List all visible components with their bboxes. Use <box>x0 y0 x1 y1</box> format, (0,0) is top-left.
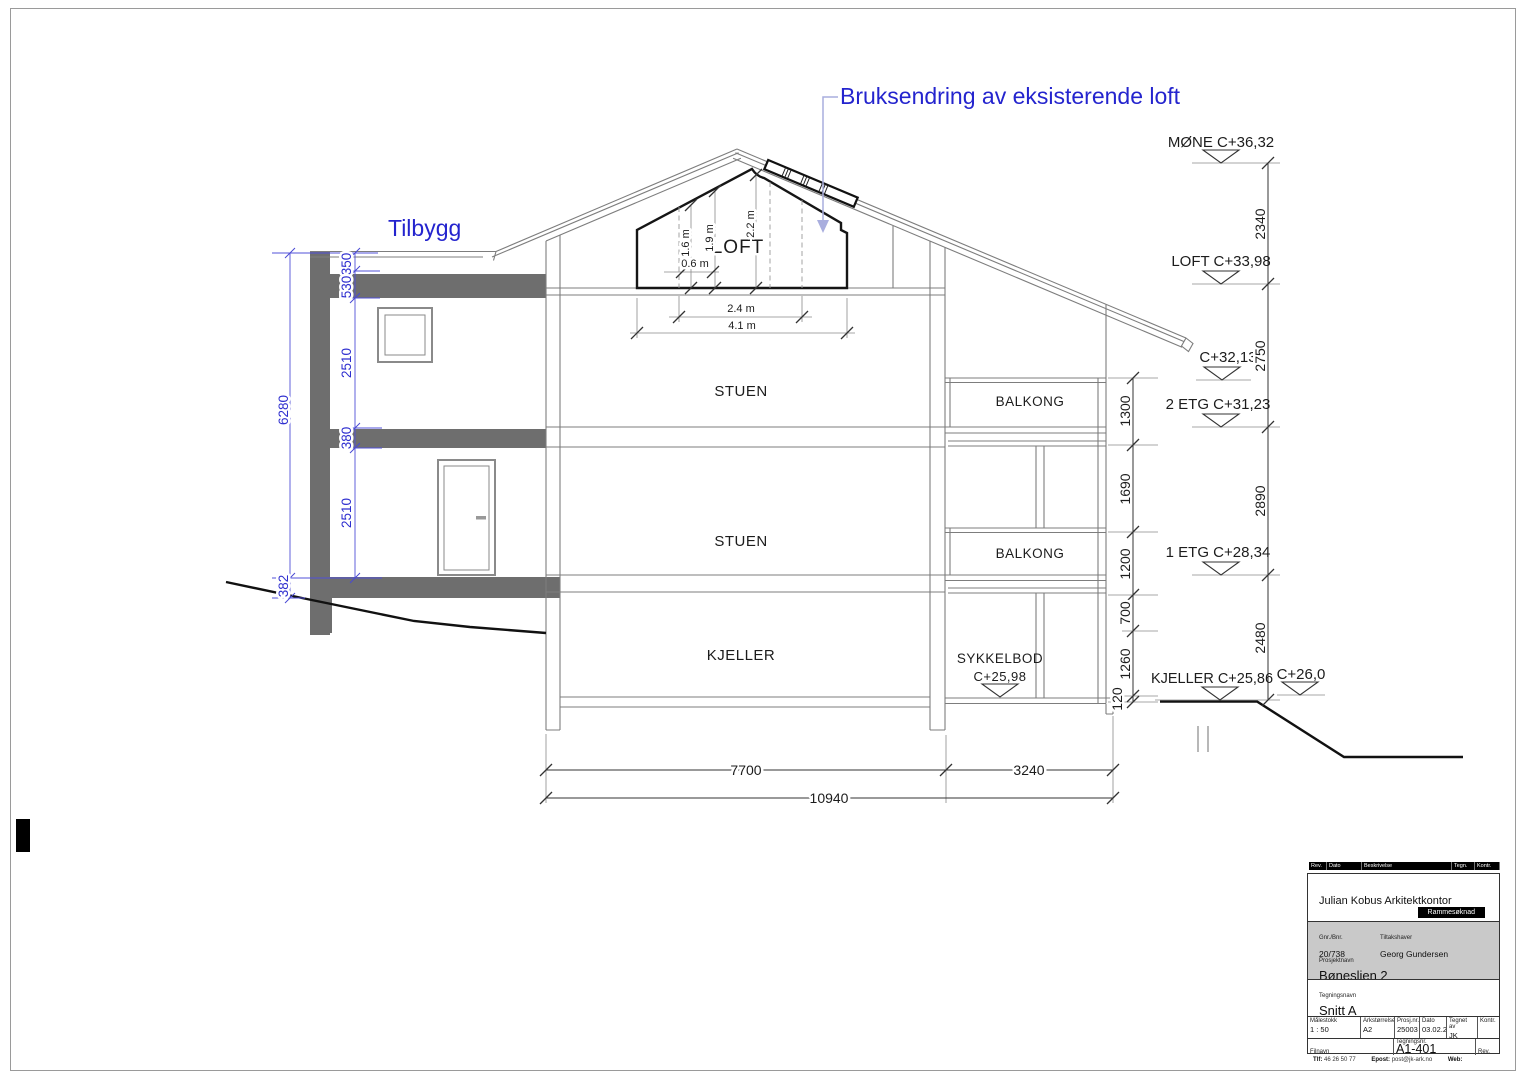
level-triangle-loft <box>1203 271 1239 284</box>
tegningsnr-label: Tegningsnr. <box>1396 1039 1427 1045</box>
tegnetav-value: JK <box>1449 1031 1475 1038</box>
dim-loft-06m: 0.6 m <box>681 258 709 270</box>
dim-loft-24m: 2.4 m <box>727 303 755 315</box>
rev-col-header: Rev. <box>1309 862 1327 870</box>
kontr-label: Kontr. <box>1480 1018 1497 1024</box>
leader-line <box>823 97 838 222</box>
level-label-etg1: 1 ETG C+28,34 <box>1166 544 1271 561</box>
tegnetav-label: Tegnet av <box>1449 1018 1475 1030</box>
dim-right-2890: 2890 <box>1252 485 1268 516</box>
contact-footer: Tlf: 46 26 50 77 Epost: post@jk-ark.no W… <box>1313 1057 1513 1063</box>
dim-inner-120: 120 <box>1109 687 1125 711</box>
arkstorrelse-cell: Arkstørrelse A2 <box>1361 1017 1395 1038</box>
kontr-cell: Kontr. <box>1478 1017 1499 1038</box>
tegningsnavn-value: Snitt A <box>1319 1003 1357 1018</box>
rev-cell: Rev. <box>1476 1039 1499 1055</box>
addition-floor-slab <box>310 577 560 598</box>
tegn-col-header: Tegn. <box>1452 862 1475 870</box>
level-triangle-kjeller <box>1202 687 1238 700</box>
web-label: Web: <box>1448 1057 1463 1063</box>
window <box>378 308 432 362</box>
room-label-stuen-lower: STUEN <box>714 533 767 550</box>
level-triangle-etg1 <box>1203 562 1239 575</box>
rev-label: Rev. <box>1478 1049 1490 1055</box>
arkstorrelse-value: A2 <box>1363 1025 1392 1034</box>
level-label-mone: MØNE C+36,32 <box>1168 134 1274 151</box>
level-label-c26: C+26,0 <box>1277 666 1326 683</box>
company-name: Julian Kobus Arkitektkontor <box>1319 895 1452 907</box>
dim-left-382: 382 <box>276 575 291 598</box>
annotation-tilbygg: Tilbygg <box>388 215 461 241</box>
dato-value: 03.02.26 <box>1422 1025 1444 1034</box>
door <box>438 460 495 575</box>
dato-col-header: Dato <box>1327 862 1362 870</box>
beskrivelse-col-header: Beskrivelse <box>1362 862 1452 870</box>
dim-left-6280: 6280 <box>276 395 291 425</box>
prosjektnavn-label: Prosjektnavn <box>1319 958 1354 964</box>
level-triangle-sykkelbod <box>982 684 1018 697</box>
malestokk-value: 1 : 50 <box>1310 1025 1358 1034</box>
filnavn-label: Filnavn <box>1310 1049 1329 1055</box>
dim-bottom-3240: 3240 <box>1013 762 1044 778</box>
tiltakshaver-value: Georg Gundersen <box>1380 949 1448 959</box>
level-triangle-c32 <box>1204 367 1240 380</box>
dim-loft-19m: 1.9 m <box>704 224 716 252</box>
dim-right-2340: 2340 <box>1252 208 1268 239</box>
level-triangle-etg2 <box>1203 414 1239 427</box>
tlf-label: Tlf: <box>1313 1057 1322 1063</box>
fold-mark <box>16 819 30 852</box>
title-block-project-section: Gnr./Bnr. 20/738 Tiltakshaver Georg Gund… <box>1308 921 1499 979</box>
dim-loft-22m: 2.2 m <box>745 210 757 238</box>
dim-inner-1690: 1690 <box>1117 473 1133 504</box>
room-label-stuen-upper: STUEN <box>714 383 767 400</box>
dim-loft-16m: 1.6 m <box>680 229 692 257</box>
section-drawing: Bruksendring av eksisterende loft Tilbyg… <box>0 0 1527 1080</box>
dim-left-350: 350 <box>339 253 354 276</box>
dim-inner-700: 700 <box>1117 601 1133 625</box>
malestokk-cell: Målestokk 1 : 50 <box>1308 1017 1361 1038</box>
dato-label: Dato <box>1422 1018 1444 1024</box>
addition-mid-slab <box>330 429 546 448</box>
dim-bottom-7700: 7700 <box>730 762 761 778</box>
level-triangle-mone <box>1203 150 1239 163</box>
dim-inner-1260: 1260 <box>1117 648 1133 679</box>
epost-value: post@jk-ark.no <box>1392 1057 1432 1063</box>
dim-right-2480: 2480 <box>1252 622 1268 653</box>
revision-header-bar: Rev. Dato Beskrivelse Tegn. Kontr. <box>1309 862 1500 870</box>
roof-window-strip <box>764 160 857 207</box>
tlf-value: 46 26 50 77 <box>1324 1057 1356 1063</box>
dato-cell: Dato 03.02.26 <box>1420 1017 1447 1038</box>
tegningsnavn-label: Tegningsnavn <box>1319 993 1356 999</box>
dim-left-2510-lower: 2510 <box>339 498 354 528</box>
gnr-label: Gnr./Bnr. <box>1319 935 1343 941</box>
level-label-c32: C+32,13 <box>1199 349 1256 366</box>
level-label-kjeller: KJELLER C+25,86 <box>1151 671 1273 687</box>
dimension-lines <box>546 163 1268 798</box>
dim-inner-1200: 1200 <box>1117 548 1133 579</box>
filnavn-cell: Filnavn <box>1308 1039 1394 1055</box>
tegningsnr-cell: Tegningsnr. A1-401 <box>1394 1039 1476 1055</box>
room-label-loft: LOFT <box>712 237 765 258</box>
title-block-file-row: Filnavn Tegningsnr. A1-401 Rev. <box>1308 1038 1499 1055</box>
dim-bottom-10940: 10940 <box>810 790 849 806</box>
level-label-etg2: 2 ETG C+31,23 <box>1166 396 1271 413</box>
arkstorrelse-label: Arkstørrelse <box>1363 1018 1392 1024</box>
prosjnr-cell: Prosj.nr. 25003 <box>1395 1017 1420 1038</box>
room-label-kjeller: KJELLER <box>707 647 776 664</box>
arrow-head-icon <box>817 220 829 233</box>
level-label-loft: LOFT C+33,98 <box>1171 253 1270 270</box>
application-type-badge: Rammesøknad <box>1418 907 1485 918</box>
sykkelbod-level-label: C+25,98 <box>973 669 1026 684</box>
door-handle <box>476 516 486 520</box>
dim-left-2510-upper: 2510 <box>339 348 354 378</box>
drawing-sheet: Bruksendring av eksisterende loft Tilbyg… <box>0 0 1527 1080</box>
prosjnr-label: Prosj.nr. <box>1397 1018 1417 1024</box>
tiltakshaver-label: Tiltakshaver <box>1380 935 1412 941</box>
prosjnr-value: 25003 <box>1397 1025 1417 1034</box>
annotation-loft-change: Bruksendring av eksisterende loft <box>840 83 1181 109</box>
dim-right-2750: 2750 <box>1252 340 1268 371</box>
epost-label: Epost: <box>1371 1057 1390 1063</box>
title-block-company-section: Julian Kobus Arkitektkontor Rammesøknad <box>1308 874 1499 921</box>
terrain-line-right <box>1160 702 1463 758</box>
room-label-balkong-upper: BALKONG <box>996 394 1065 409</box>
dim-left-380: 380 <box>339 427 354 450</box>
tegnetav-cell: Tegnet av JK <box>1447 1017 1478 1038</box>
addition-roof-slab <box>330 274 546 298</box>
dim-loft-41m: 4.1 m <box>728 320 756 332</box>
dim-inner-1300: 1300 <box>1117 395 1133 426</box>
loft-change-leader <box>817 97 838 233</box>
level-triangle-c26 <box>1282 682 1318 695</box>
kontr-col-header: Kontr. <box>1475 862 1500 870</box>
title-block-drawing-name-section: Tegningsnavn Snitt A <box>1308 979 1499 1016</box>
room-label-balkong-lower: BALKONG <box>996 546 1065 561</box>
level-lines <box>1155 163 1325 700</box>
dim-left-530: 530 <box>339 276 354 299</box>
title-block: Julian Kobus Arkitektkontor Rammesøknad … <box>1307 873 1500 1054</box>
room-label-sykkelbod: SYKKELBOD <box>957 651 1043 666</box>
